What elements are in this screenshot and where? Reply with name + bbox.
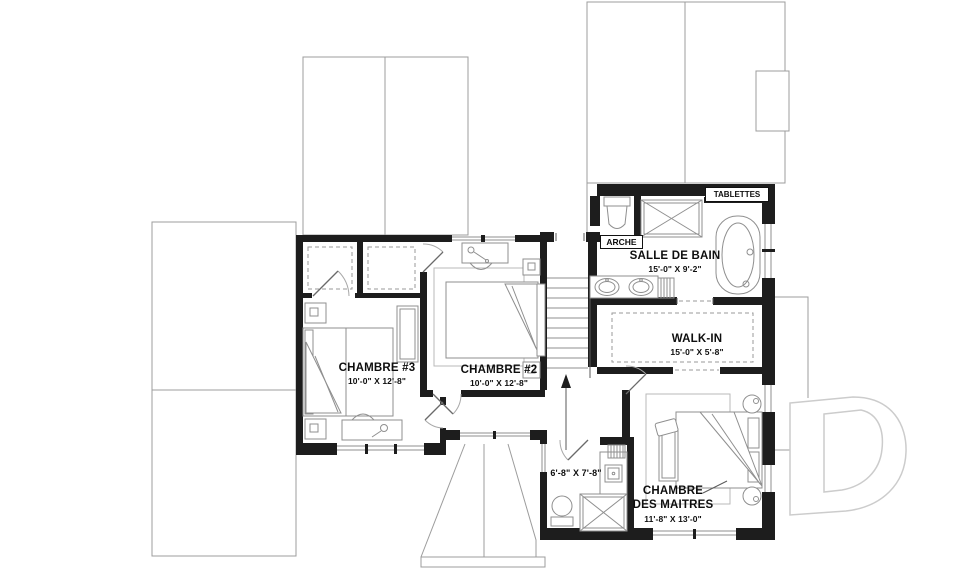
room-dims-petite-salle-de-bain: 6'-8" X 7'-8"	[550, 468, 601, 478]
armoire-chambre3	[397, 306, 418, 362]
room-dims-chambre-des-maitres: 11'-8" X 13'-0"	[644, 514, 702, 524]
room-dims-walk-in: 15'-0" X 5'-8"	[670, 347, 723, 357]
room-label-chambre3: CHAMBRE #3	[339, 362, 416, 374]
room-label-chambre2: CHAMBRE #2	[461, 364, 538, 376]
bathtub	[716, 216, 760, 294]
room-label-walk-in: WALK-IN	[672, 333, 723, 345]
toilet-small-bath	[551, 496, 573, 526]
room-label-salle-de-bain: SALLE DE BAIN	[630, 250, 721, 262]
watermark-logo	[790, 397, 906, 515]
bench-master	[655, 418, 679, 481]
room-dims-chambre2: 10'-0" X 12'-8"	[470, 378, 528, 388]
room-label-chambre-des-maitres-1: CHAMBRE	[643, 485, 703, 497]
arche-label: ARCHE	[600, 235, 643, 249]
room-dims-chambre3: 10'-0" X 12'-8"	[348, 376, 406, 386]
shower-main-bath	[641, 200, 702, 237]
staircase	[547, 278, 590, 450]
room-label-chambre-des-maitres-2: DES MAITRES	[633, 499, 714, 511]
desk-chambre3	[342, 414, 402, 440]
double-vanity-sinks	[590, 276, 658, 298]
floor-plan: CHAMBRE #3 10'-0" X 12'-8" CHAMBRE #2 10…	[0, 0, 960, 569]
stairs-up-arrow-icon	[561, 374, 571, 450]
bed-chambre2	[434, 259, 545, 378]
room-dims-salle-de-bain: 15'-0" X 9'-2"	[648, 264, 701, 274]
linen-shelves	[658, 278, 674, 298]
shower-small-bath	[580, 494, 627, 531]
floor-plan-drawing	[0, 0, 960, 569]
tablettes-label: TABLETTES	[705, 187, 769, 202]
desk-chambre2	[462, 243, 508, 270]
